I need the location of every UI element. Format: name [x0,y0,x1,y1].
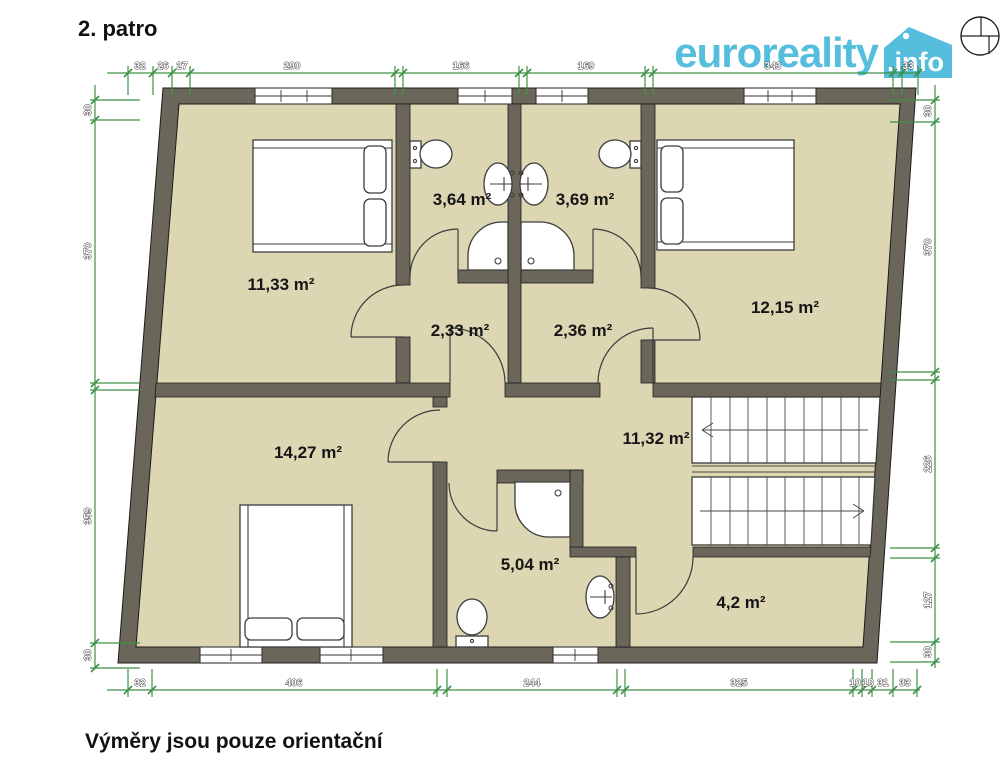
dim-label: 127 [923,591,934,608]
dim-label: 30 [83,104,94,116]
dim-label: 370 [83,242,94,259]
dim-label: 244 [524,678,541,689]
sink-icon [519,163,548,205]
dim-label: 33 [899,678,911,689]
window-icon [536,88,588,104]
room-label-hall-small-left: 2,33 m² [431,321,490,340]
floorplan-page: 2. patro Výměry jsou pouze orientační eu… [0,0,1008,768]
dim-label: 406 [286,678,303,689]
compass-icon [961,17,999,55]
dim-label: 166 [453,61,470,72]
window-icon [744,88,816,104]
dim-label: 370 [923,238,934,255]
dim-label: 26 [157,61,169,72]
dim-label: 10 [849,678,861,689]
dim-label: 30 [923,646,934,658]
window-icon [200,647,262,663]
dim-label: 325 [731,678,748,689]
dim-label: 18 [862,678,874,689]
toilet-icon [599,140,641,168]
sink-icon [586,576,614,618]
room-label-hall-small-right: 2,36 m² [554,321,613,340]
dim-label: 32 [134,61,146,72]
room-label-room-bottom-right: 4,2 m² [716,593,765,612]
logo-chimney-dot [903,33,909,39]
toilet-icon [410,140,452,168]
room-label-bathroom-bottom: 5,04 m² [501,555,560,574]
room-label-bedroom-top-left: 11,33 m² [247,275,314,294]
bed-icon [253,140,392,252]
dim-label: 27 [176,61,188,72]
bed-icon [240,505,352,647]
room-label-hall-main: 11,32 m² [622,429,689,448]
dim-label: 290 [284,61,301,72]
toilet-icon [456,599,488,647]
bed-icon [657,140,794,250]
dim-label: 33 [902,61,914,72]
dim-label: 30 [83,649,94,661]
dim-label: 359 [83,507,94,524]
dim-ticks-bottom [124,669,921,697]
page-title: 2. patro [78,16,157,41]
dim-label: 31 [877,678,889,689]
footer-note: Výměry jsou pouze orientační [85,730,384,753]
dim-label: 32 [134,678,146,689]
room-label-bathroom-top-left: 3,64 m² [433,190,492,209]
room-label-bathroom-top-right: 3,69 m² [556,190,615,209]
room-label-bedroom-top-right: 12,15 m² [751,298,819,317]
window-icon [458,88,512,104]
euroreality-logo: euroreality .info [674,17,999,78]
dim-label: 226 [923,455,934,472]
window-icon [553,647,598,663]
dim-label: 30 [923,105,934,117]
window-icon [320,647,383,663]
dim-label: 343 [765,61,782,72]
room-label-bedroom-bottom-left: 14,27 m² [274,443,342,462]
dimension-line-bottom: 32 406 244 325 10 18 31 33 [107,669,921,697]
dim-label: 169 [578,61,595,72]
window-icon [255,88,332,104]
